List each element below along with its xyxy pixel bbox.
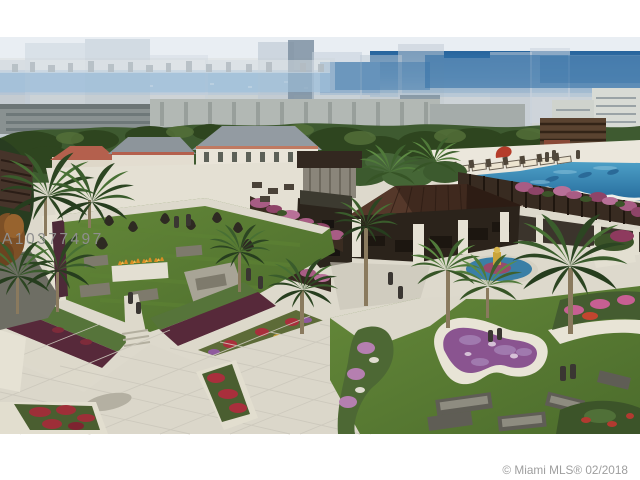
svg-text:© Miami MLS® 02/2018: © Miami MLS® 02/2018 xyxy=(502,463,628,477)
svg-text:A10377497: A10377497 xyxy=(2,231,104,248)
